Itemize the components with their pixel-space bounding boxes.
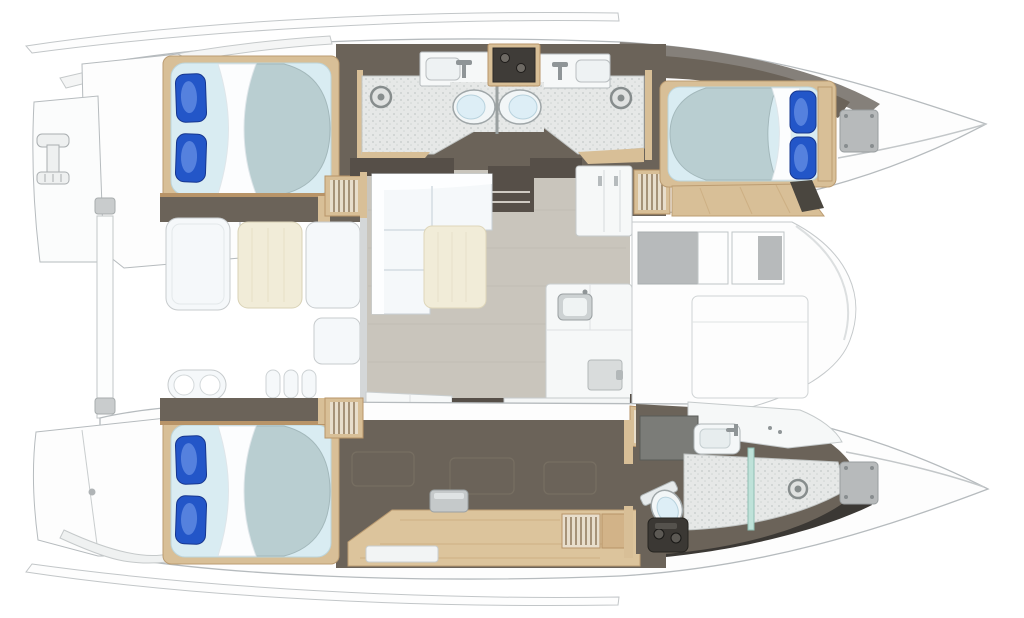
door-trim-wood — [624, 506, 633, 558]
twin-toilets — [450, 80, 544, 134]
toilet-icon — [499, 90, 541, 124]
headboard-wood-trim — [818, 87, 832, 181]
shower-drain-icon — [371, 87, 391, 107]
pillow — [790, 137, 816, 179]
aft-crossbeam — [97, 216, 113, 418]
aft-cockpit — [166, 218, 360, 400]
storage-cabinet — [488, 166, 534, 212]
salon-aft-cabinet-dark — [530, 158, 582, 178]
starboard-hull — [26, 398, 988, 606]
shower-drain-icon — [789, 480, 807, 498]
companionway-stairs-starboard-aft — [325, 398, 363, 438]
bathroom-sink — [694, 424, 740, 454]
desk-shelf — [366, 546, 438, 562]
bow-locker-hatch — [840, 462, 878, 504]
deck-hatch-box — [488, 44, 540, 86]
aft-cleat — [95, 398, 115, 414]
cockpit-corner-seat — [314, 318, 360, 364]
transom-panel — [33, 418, 166, 556]
forward-cockpit — [632, 180, 856, 421]
equipment-box — [648, 518, 688, 552]
cockpit-bench — [166, 218, 230, 310]
toilet-icon — [453, 90, 495, 124]
duvet — [670, 88, 776, 180]
lounge-cushion — [424, 226, 486, 308]
vanity-faucet-icon — [778, 430, 782, 434]
step-pad — [284, 370, 298, 398]
forward-bench-frame — [698, 232, 728, 284]
step-pad — [302, 370, 316, 398]
door-trim-wood — [624, 420, 633, 464]
pillow — [790, 91, 816, 133]
salon-door-wood-jamb — [360, 172, 367, 218]
louvered-locker — [562, 514, 600, 548]
step-pad — [266, 370, 280, 398]
floor-plan-drawing — [0, 0, 1024, 618]
vanity-faucet-icon — [768, 426, 772, 430]
transom-fitting-dot — [89, 489, 96, 496]
galley-faucet-icon — [583, 290, 588, 295]
refrigerator-cabinet — [576, 166, 632, 236]
starboard-swim-platform — [33, 418, 168, 563]
port-head-wall-trim-right — [645, 70, 652, 160]
sink-basin — [576, 60, 610, 82]
pillow — [175, 73, 207, 122]
cockpit-seat — [306, 222, 360, 308]
floor-hatch — [588, 360, 623, 390]
sink-basin — [426, 58, 460, 80]
double-stool — [168, 370, 226, 400]
forward-bench-seat — [758, 236, 782, 280]
counter-gray — [640, 416, 698, 460]
bow-locker-hatch — [840, 110, 878, 152]
cockpit-table — [238, 222, 302, 308]
shower-drain-icon — [611, 88, 631, 108]
companionway-stairs-port-aft — [325, 176, 363, 216]
catamaran-floor-plan — [0, 0, 1024, 618]
aft-cleat — [95, 198, 115, 214]
sunpad — [692, 296, 808, 398]
desk-seat — [430, 490, 468, 512]
starboard-aft-berth — [163, 418, 339, 564]
shower-glass-partition — [748, 448, 754, 530]
port-aft-berth — [163, 56, 339, 202]
pillow — [175, 133, 207, 182]
